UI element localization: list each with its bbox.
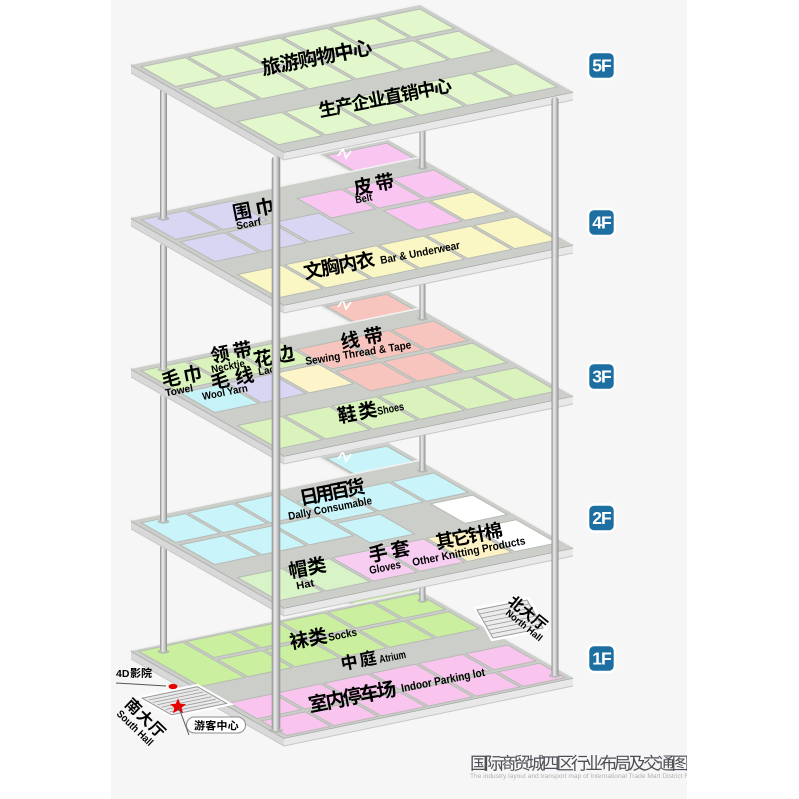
svg-text:The industry layout and transp: The industry layout and transport map of…	[470, 773, 699, 780]
svg-text:4F: 4F	[592, 213, 612, 233]
svg-text:1F: 1F	[592, 649, 612, 669]
svg-text:4D: 4D	[116, 668, 130, 680]
svg-text:2F: 2F	[592, 508, 612, 528]
svg-text:3F: 3F	[592, 367, 612, 387]
svg-text:5F: 5F	[592, 56, 612, 76]
